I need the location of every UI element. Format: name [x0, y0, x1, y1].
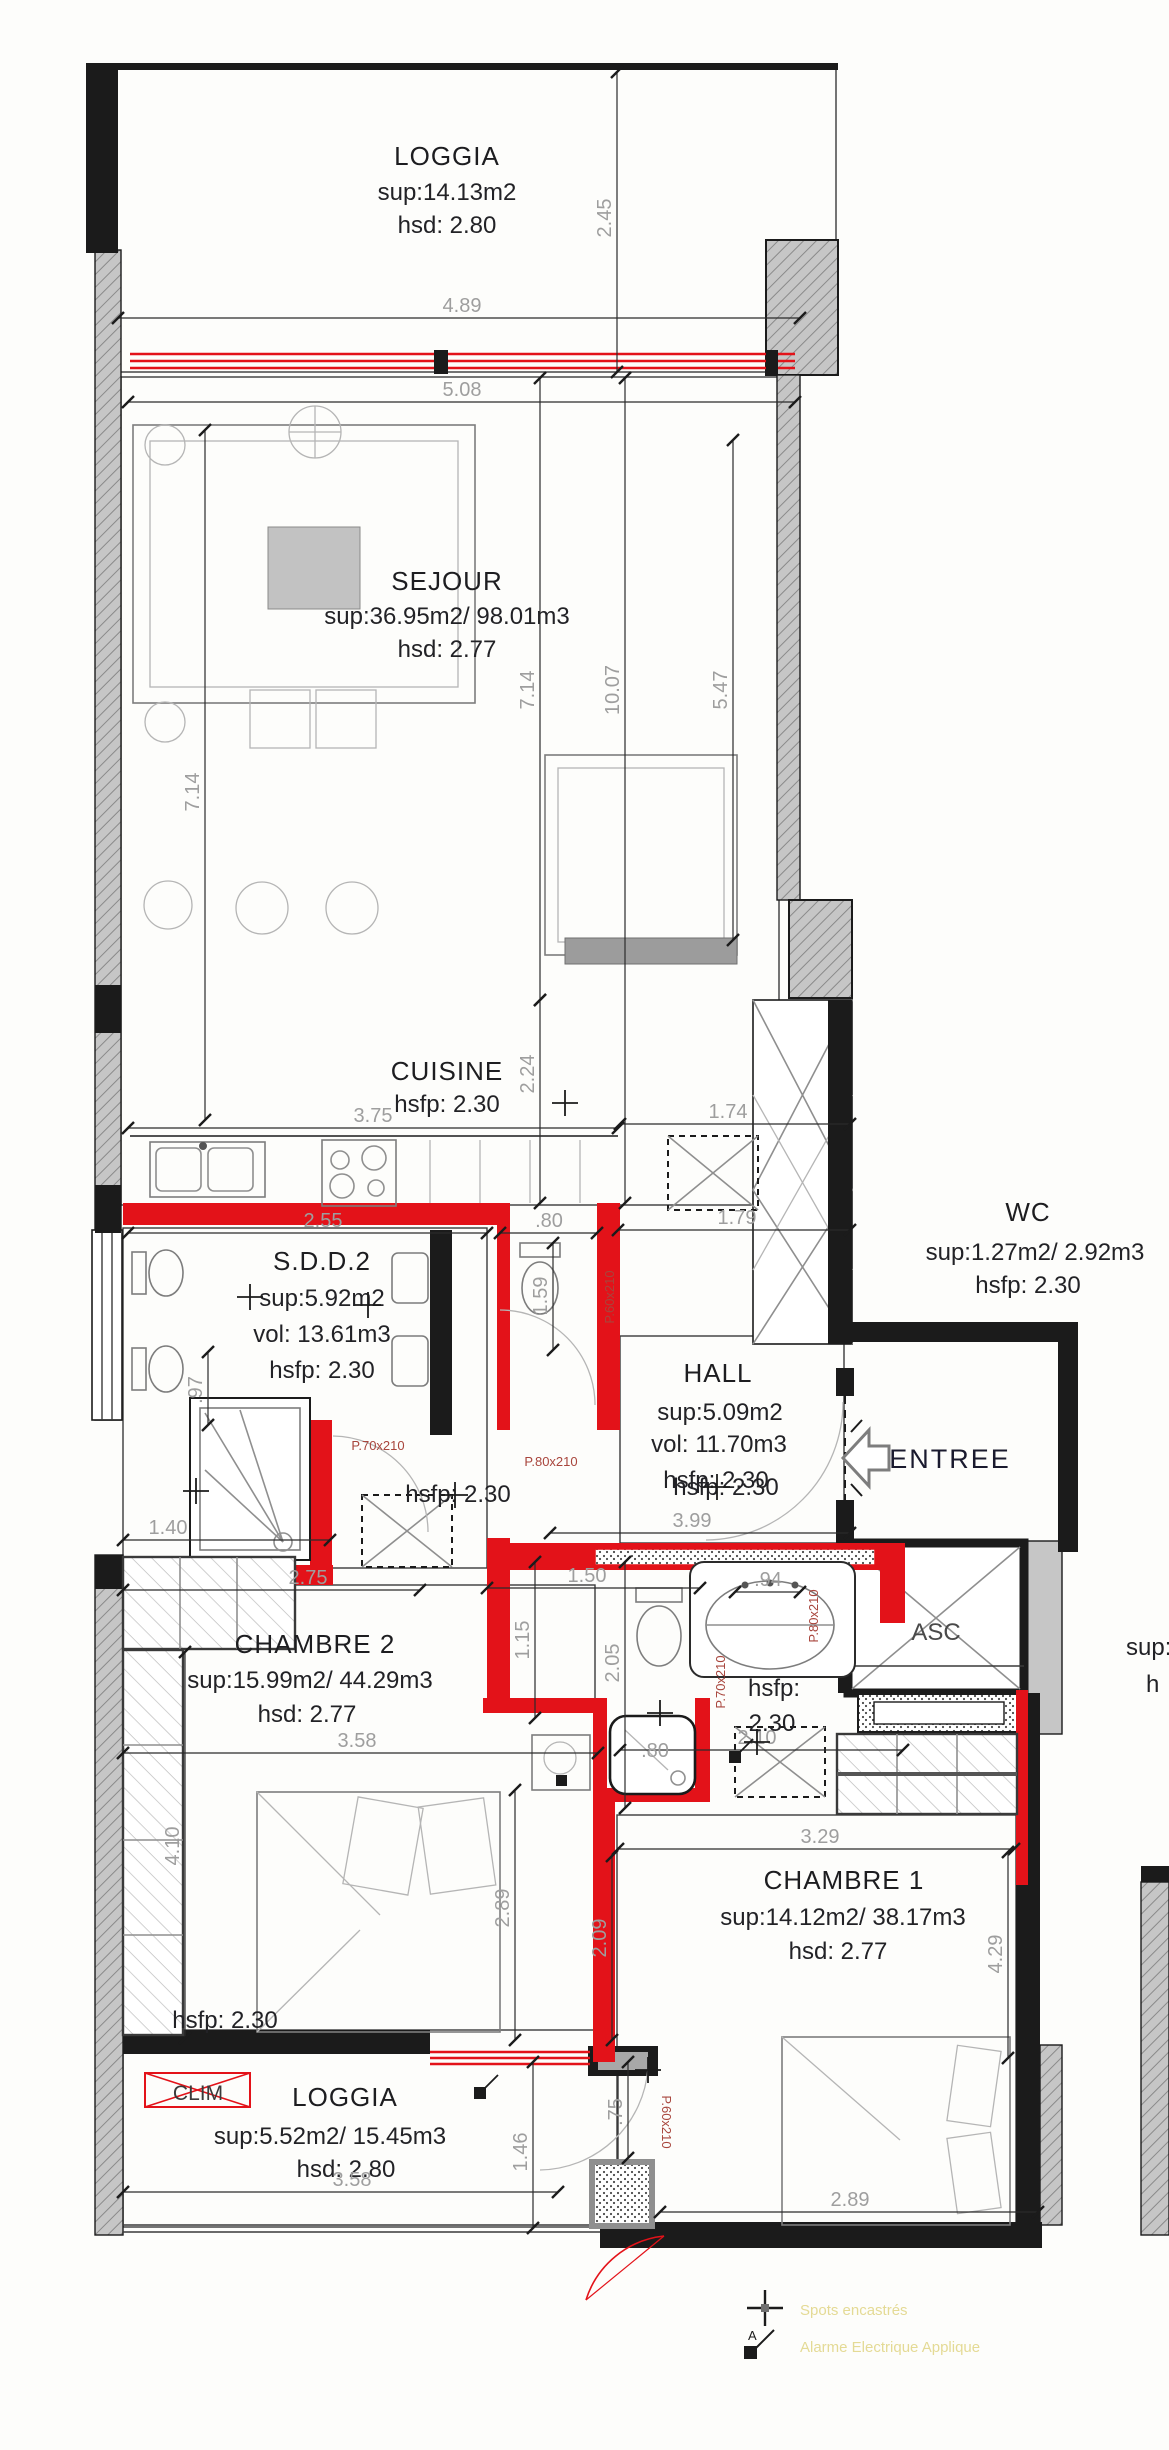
window-bottom-loggia	[430, 2052, 590, 2064]
legend: Spots encastrés A Alarme Electrique Appl…	[744, 2290, 980, 2359]
room-label-wc: WC	[1005, 1197, 1050, 1227]
dimension-label: .94	[754, 1569, 782, 1591]
dimension-label: .80	[535, 1210, 563, 1232]
entree-arrow-icon	[843, 1420, 889, 1496]
dimension-label: 10.07	[602, 665, 624, 715]
svg-text:hsd: 2.77: hsd: 2.77	[398, 636, 497, 663]
floor-plan-canvas: LOGGIA sup:14.13m2 hsd: 2.80 SEJOUR sup:…	[0, 0, 1169, 2450]
dimension-label: 7.14	[517, 671, 539, 710]
dimension-label: 2.45	[594, 199, 616, 238]
dimension-label: 2.89	[831, 2189, 870, 2211]
door-size-label: P.70x210	[351, 1438, 404, 1453]
column	[592, 2162, 652, 2226]
room-label-chambre2: CHAMBRE 2	[235, 1629, 396, 1659]
dimension-label: 4.10	[162, 1827, 184, 1866]
room-label-cuisine: CUISINE	[391, 1056, 503, 1086]
bay-window-top	[130, 350, 795, 374]
dimension-label: 2.89	[492, 1889, 514, 1928]
dimension-label: 3.58	[338, 1730, 377, 1752]
dimension-label: 3.75	[354, 1105, 393, 1127]
room-label-loggia-top: LOGGIA	[394, 141, 500, 171]
legend-item-spots: Spots encastrés	[800, 2302, 908, 2319]
ceiling-fan-icon	[145, 425, 185, 465]
door-size-label: P.70x210	[713, 1655, 728, 1708]
dimension-label: 3.29	[801, 1826, 840, 1848]
dimension-label: 2.05	[602, 1644, 624, 1683]
dining-table	[545, 755, 737, 955]
door-size-label: P.80x210	[806, 1589, 821, 1642]
svg-text:sup:14.13m2: sup:14.13m2	[378, 179, 517, 206]
svg-text:hsfp: 2.30: hsfp: 2.30	[394, 1091, 499, 1118]
dimension-label: 2.75	[289, 1567, 328, 1589]
svg-text:hsd: 2.77: hsd: 2.77	[789, 1938, 888, 1965]
entree-label: ENTREE	[889, 1444, 1011, 1474]
dimension-label: 2.09	[589, 1919, 611, 1958]
nightstand	[532, 1735, 590, 1790]
dimension-label: 1.74	[709, 1101, 748, 1123]
svg-text:sup:36.95m2/ 98.01m3: sup:36.95m2/ 98.01m3	[324, 603, 570, 630]
dimension-label: 2.55	[304, 1210, 343, 1232]
svg-text:hsfp: 2.30: hsfp: 2.30	[269, 1357, 374, 1384]
dimension-label: 5.08	[443, 379, 482, 401]
coffee-table	[268, 527, 360, 609]
tv-bench	[565, 938, 737, 964]
height-label: 2.30	[749, 1710, 796, 1737]
svg-text:hsd: 2.80: hsd: 2.80	[398, 212, 497, 239]
dimension-label: 3.58	[333, 2169, 372, 2191]
bidet	[132, 1346, 183, 1392]
svg-text:vol: 13.61m3: vol: 13.61m3	[253, 1321, 390, 1348]
alarm-icon	[484, 2075, 498, 2089]
washbasin	[392, 1336, 428, 1386]
toilet	[636, 1588, 682, 1666]
clim-label: CLIM	[173, 2082, 223, 2105]
toilet	[132, 1250, 183, 1296]
right-cut-label: sup:2	[1126, 1634, 1169, 1661]
dimension-label: 4.89	[443, 295, 482, 317]
dimension-label: 1.40	[149, 1517, 188, 1539]
floor-plan: LOGGIA sup:14.13m2 hsd: 2.80 SEJOUR sup:…	[0, 0, 1169, 2450]
vent-box	[668, 1136, 758, 1210]
svg-text:vol: 11.70m3: vol: 11.70m3	[651, 1431, 787, 1458]
room-label-hall: HALL	[683, 1358, 752, 1388]
dimension-label: 1.59	[530, 1277, 552, 1316]
legend-item-alarme: Alarme Electrique Applique	[800, 2339, 980, 2356]
svg-text:sup:5.92m2: sup:5.92m2	[259, 1285, 384, 1312]
room-label-sejour: SEJOUR	[391, 566, 502, 596]
svg-text:sup:5.09m2: sup:5.09m2	[657, 1399, 782, 1426]
bed	[257, 1792, 500, 2032]
ceiling-fan-icon	[145, 702, 185, 742]
dimension-label: 1.50	[568, 1565, 607, 1587]
room-label-chambre1: CHAMBRE 1	[764, 1865, 925, 1895]
height-label: hsfp:	[748, 1675, 800, 1702]
svg-text:sup:14.12m2/ 38.17m3: sup:14.12m2/ 38.17m3	[720, 1904, 966, 1931]
svg-text:A: A	[748, 2328, 757, 2343]
window-left	[92, 1230, 122, 1420]
svg-text:hsfp: 2.30: hsfp: 2.30	[975, 1272, 1080, 1299]
kitchen-sink	[150, 1142, 265, 1197]
room-label-asc: ASC	[911, 1619, 960, 1646]
closet	[837, 1734, 1017, 1814]
bed	[782, 2037, 1010, 2225]
dimension-label: .80	[641, 1740, 669, 1762]
dimension-label: 1.46	[510, 2133, 532, 2172]
door-size-label: P.80x210	[524, 1454, 577, 1469]
door-size-label: P.60x210	[659, 2095, 674, 2148]
dimension-label: 7.14	[182, 773, 204, 812]
svg-text:sup:5.52m2/ 15.45m3: sup:5.52m2/ 15.45m3	[214, 2123, 446, 2150]
svg-text:hsd: 2.77: hsd: 2.77	[258, 1701, 357, 1728]
svg-text:sup:1.27m2/ 2.92m3: sup:1.27m2/ 2.92m3	[926, 1239, 1145, 1266]
dimension-label: 2.24	[517, 1055, 539, 1094]
cooktop	[322, 1140, 396, 1206]
height-label: hsfp: 2.30	[172, 2007, 277, 2034]
door-size-label: P.60x210	[602, 1270, 617, 1323]
svg-text:sup:15.99m2/ 44.29m3: sup:15.99m2/ 44.29m3	[187, 1667, 433, 1694]
door-swing	[500, 1310, 595, 1405]
dimension-label: .75	[605, 2098, 627, 2126]
room-label-loggia-bottom: LOGGIA	[292, 2082, 398, 2112]
alarm-icon: A	[744, 2328, 774, 2359]
dimension-label: 5.47	[710, 671, 732, 710]
dimension-label: .97	[185, 1376, 207, 1404]
dimension-label: 3.99	[673, 1510, 712, 1532]
spot-cross-icon	[747, 2290, 783, 2326]
dimension-label: 1.79	[718, 1207, 757, 1229]
room-label-sdd2: S.D.D.2	[273, 1246, 371, 1276]
washbasin	[392, 1253, 428, 1303]
dimension-label: 1.15	[512, 1621, 534, 1660]
svg-text:h: h	[1146, 1671, 1159, 1698]
dimension-label: 4.29	[985, 1935, 1007, 1974]
